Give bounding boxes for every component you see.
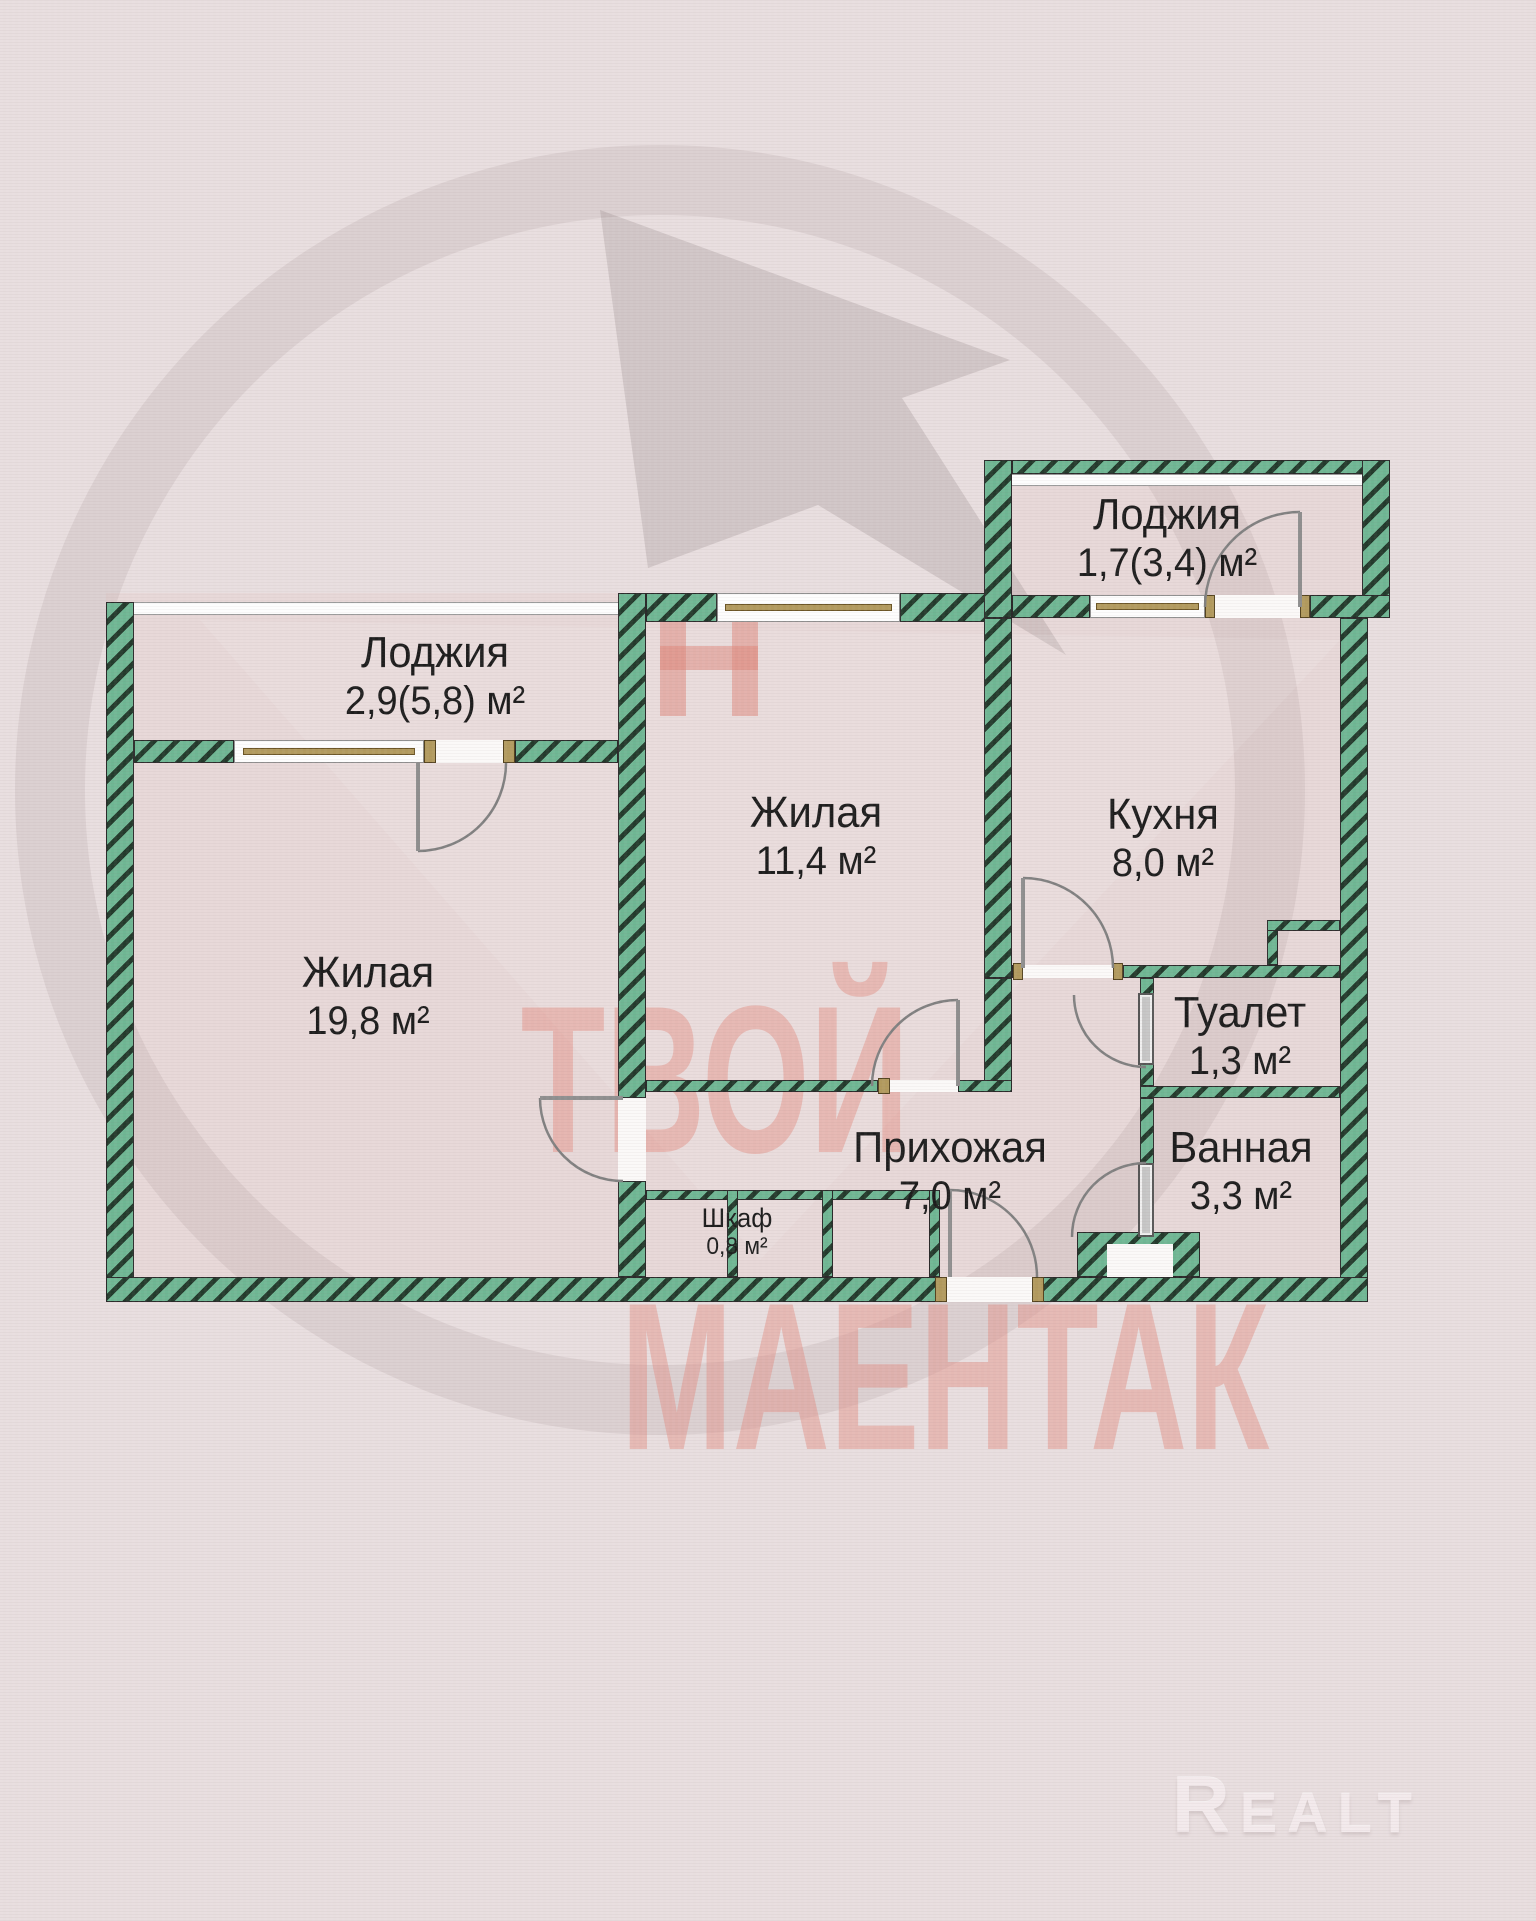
- door-arc: [1023, 878, 1113, 968]
- door-arc: [1072, 1163, 1146, 1237]
- realt-logo: Realt: [1172, 1765, 1422, 1845]
- door-arc: [1074, 995, 1146, 1067]
- room-label-loggia-right: Лоджия 1,7(3,4) м²: [1077, 490, 1257, 586]
- room-area: 1,3 м²: [1174, 1038, 1306, 1084]
- room-name: Лоджия: [345, 628, 525, 678]
- room-name: Прихожая: [853, 1123, 1047, 1173]
- room-area: 2,9(5,8) м²: [345, 678, 525, 724]
- room-label-toilet: Туалет 1,3 м²: [1174, 988, 1306, 1084]
- door-arc: [540, 1098, 623, 1181]
- room-label-bathroom: Ванная 3,3 м²: [1169, 1123, 1312, 1219]
- door-arc: [872, 1000, 958, 1086]
- room-area: 1,7(3,4) м²: [1077, 540, 1257, 586]
- floor-plan: ТВОЙ МАЕНТАК: [0, 0, 1536, 1921]
- room-name: Туалет: [1174, 988, 1306, 1038]
- room-name: Жилая: [302, 948, 434, 998]
- room-area: 11,4 м²: [750, 838, 882, 884]
- room-name: Ванная: [1169, 1123, 1312, 1173]
- room-label-living-small: Жилая 11,4 м²: [750, 788, 882, 884]
- room-name: Кухня: [1107, 790, 1219, 840]
- room-name: Жилая: [750, 788, 882, 838]
- room-name: Лоджия: [1077, 490, 1257, 540]
- door-swing-arcs: [0, 0, 1536, 1921]
- room-name: Шкаф: [702, 1203, 773, 1233]
- room-area: 8,0 м²: [1107, 840, 1219, 886]
- room-area: 19,8 м²: [302, 998, 434, 1044]
- room-label-hallway: Прихожая 7,0 м²: [853, 1123, 1047, 1219]
- room-label-closet: Шкаф 0,8 м²: [702, 1203, 773, 1261]
- door-arc: [418, 763, 506, 851]
- room-label-loggia-left: Лоджия 2,9(5,8) м²: [345, 628, 525, 724]
- room-label-living-large: Жилая 19,8 м²: [302, 948, 434, 1044]
- room-area: 3,3 м²: [1169, 1173, 1312, 1219]
- room-label-kitchen: Кухня 8,0 м²: [1107, 790, 1219, 886]
- room-area: 0,8 м²: [702, 1233, 773, 1261]
- room-area: 7,0 м²: [853, 1173, 1047, 1219]
